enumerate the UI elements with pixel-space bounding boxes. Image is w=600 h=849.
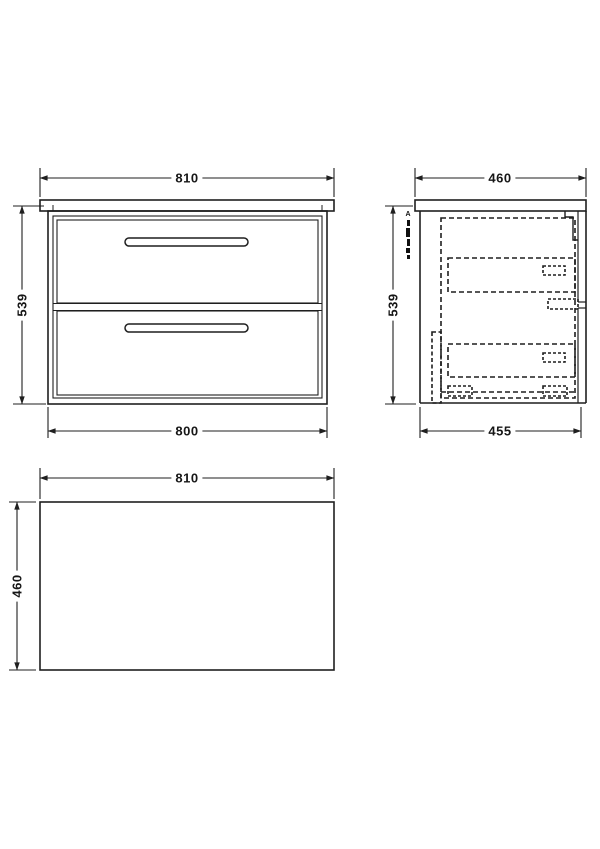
front-dim-width-bottom-label: 800 [171, 425, 202, 438]
side-hanging-bracket [565, 211, 578, 240]
front-dim-height-label: 539 [16, 289, 29, 320]
side-dim-height-label: 539 [387, 289, 400, 320]
side-tiny-annotation: A [403, 211, 413, 259]
front-dim-width-top-label: 810 [171, 172, 202, 185]
side-dim-depth-top-label: 460 [484, 172, 515, 185]
side-handle-1-hidden [543, 266, 565, 275]
side-foot-right-hidden [543, 386, 567, 396]
side-view [385, 168, 586, 438]
front-drawer-2-handle [125, 324, 248, 332]
side-carcass-hidden [441, 218, 575, 398]
front-inner-frame [53, 216, 322, 398]
side-worktop [415, 200, 586, 211]
plan-view [9, 468, 334, 670]
front-cabinet-body [48, 211, 327, 404]
side-wall-bracket-hidden [432, 332, 441, 403]
plan-dim-width-label: 810 [171, 472, 202, 485]
side-drawer-2-hidden [448, 344, 575, 377]
side-handle-2-hidden [543, 353, 565, 362]
front-worktop [40, 200, 334, 211]
side-dim-depth-bottom-label: 455 [484, 425, 515, 438]
annotation-mark [407, 255, 410, 259]
technical-drawing-canvas: 810 800 539 460 539 455 810 460 A [0, 0, 600, 849]
front-drawer-1 [57, 220, 318, 303]
front-view [13, 168, 334, 438]
plan-worktop-outline [40, 502, 334, 670]
annotation-mark [406, 228, 410, 237]
side-hidden-details [432, 218, 578, 403]
annotation-mark [407, 220, 410, 226]
side-foot-left-hidden [448, 386, 472, 396]
annotation-mark [407, 239, 410, 246]
annotation-mark [406, 248, 410, 253]
front-drawer-1-handle [125, 238, 248, 246]
side-runner-hidden [548, 299, 578, 309]
plan-dim-depth-label: 460 [11, 570, 24, 601]
side-tiny-annotation-letter: A [405, 211, 410, 218]
